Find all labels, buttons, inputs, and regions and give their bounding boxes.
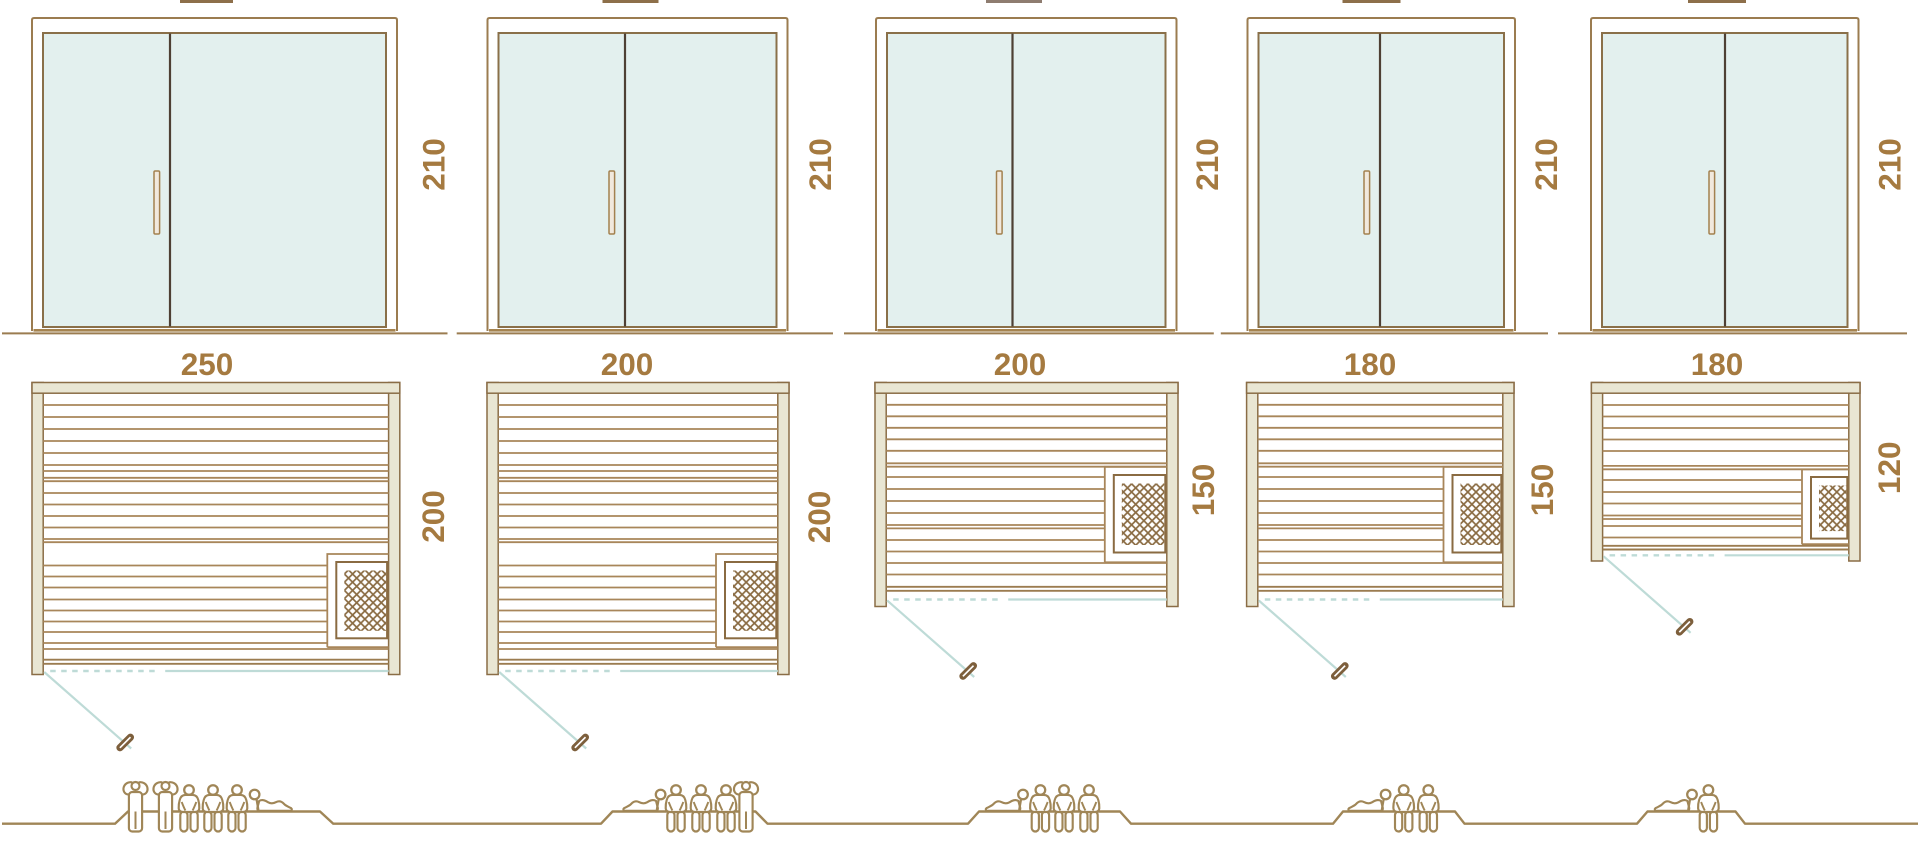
svg-text:210: 210 xyxy=(416,138,452,191)
svg-text:180: 180 xyxy=(1344,346,1397,382)
svg-text:250: 250 xyxy=(181,346,234,382)
svg-text:210: 210 xyxy=(1189,138,1225,191)
svg-text:120: 120 xyxy=(1871,442,1907,495)
svg-text:150: 150 xyxy=(1524,464,1560,517)
svg-text:210: 210 xyxy=(1872,138,1908,191)
svg-text:200: 200 xyxy=(601,346,654,382)
svg-text:200: 200 xyxy=(415,490,451,543)
svg-text:180: 180 xyxy=(1691,346,1744,382)
svg-text:210: 210 xyxy=(1528,138,1564,191)
svg-text:150: 150 xyxy=(1185,464,1221,517)
svg-text:200: 200 xyxy=(994,346,1047,382)
svg-text:200: 200 xyxy=(801,491,837,544)
svg-text:210: 210 xyxy=(802,138,838,191)
